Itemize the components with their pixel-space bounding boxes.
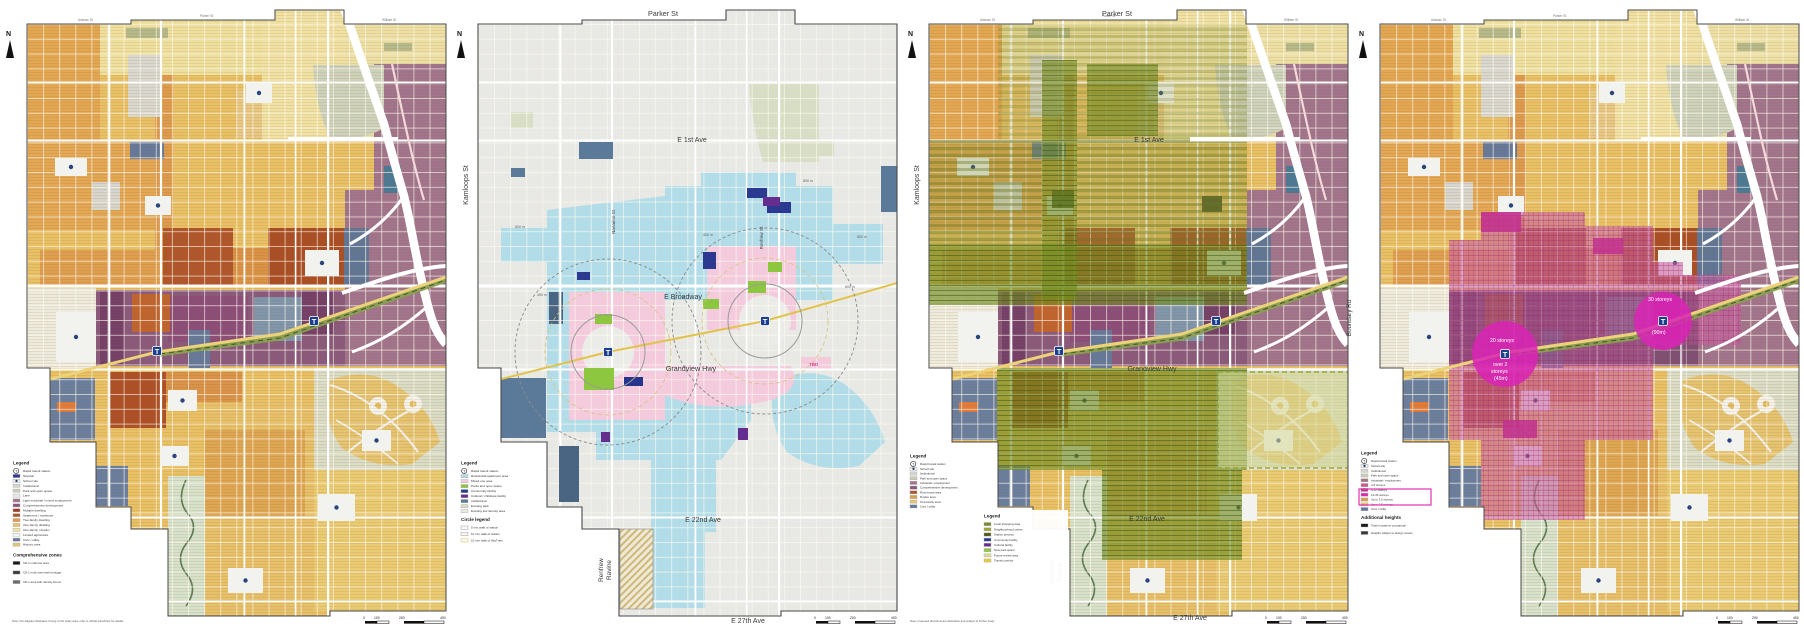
svg-text:E 22nd Ave: E 22nd Ave xyxy=(1129,516,1165,523)
svg-text:E 27th Ave: E 27th Ave xyxy=(1173,615,1207,622)
svg-text:Parks and open space: Parks and open space xyxy=(471,484,502,488)
svg-text:0: 0 xyxy=(1716,616,1718,620)
svg-text:5 min walk of station: 5 min walk of station xyxy=(471,526,499,530)
svg-text:New park space: New park space xyxy=(994,548,1015,552)
svg-text:400 m: 400 m xyxy=(537,293,547,297)
svg-text:E 1st Ave: E 1st Ave xyxy=(1134,137,1164,144)
svg-text:Local shopping area: Local shopping area xyxy=(994,522,1020,526)
svg-text:Ravine: Ravine xyxy=(606,560,613,580)
svg-text:800 m: 800 m xyxy=(515,225,525,229)
svg-text:One-family dwelling: One-family dwelling xyxy=(23,523,50,527)
svg-text:12-30 storeys: 12-30 storeys xyxy=(1371,493,1389,497)
svg-text:Parker St: Parker St xyxy=(200,14,213,18)
svg-text:Community facility: Community facility xyxy=(471,489,497,493)
svg-text:Comprehensive development: Comprehensive development xyxy=(920,486,958,490)
svg-text:Grandview Hwy: Grandview Hwy xyxy=(1127,366,1177,373)
svg-text:Station precinct: Station precinct xyxy=(994,533,1014,537)
svg-text:Rapid transit station: Rapid transit station xyxy=(1371,459,1397,463)
svg-text:Rapid transit station: Rapid transit station xyxy=(471,469,499,473)
svg-text:One-family area: One-family area xyxy=(920,500,941,504)
svg-text:Legend: Legend xyxy=(984,514,1001,519)
svg-text:800 m: 800 m xyxy=(857,235,867,239)
svg-text:100: 100 xyxy=(1276,616,1282,620)
svg-text:200: 200 xyxy=(1301,616,1307,620)
svg-text:Heights subject to design revi: Heights subject to design review xyxy=(1371,531,1413,535)
svg-text:Kamloops St: Kamloops St xyxy=(914,165,921,205)
svg-text:Park and open space: Park and open space xyxy=(23,489,53,493)
svg-text:Duplex area: Duplex area xyxy=(920,495,936,499)
svg-text:Up to 3.5 storeys: Up to 3.5 storeys xyxy=(1371,498,1393,502)
svg-text:E 27th Ave: E 27th Ave xyxy=(731,618,765,625)
svg-text:Institutional: Institutional xyxy=(471,499,487,503)
svg-text:Parker St: Parker St xyxy=(1553,14,1566,18)
svg-text:Institutional: Institutional xyxy=(1371,469,1386,473)
svg-text:10 min walk of SkyTrain: 10 min walk of SkyTrain xyxy=(471,539,503,543)
svg-text:Adanac St: Adanac St xyxy=(980,18,995,22)
svg-text:10 min walk of station: 10 min walk of station xyxy=(471,532,500,536)
svg-text:T: T xyxy=(606,348,611,357)
svg-text:Institutional: Institutional xyxy=(920,472,935,476)
svg-text:Legend: Legend xyxy=(461,461,478,466)
svg-text:William St: William St xyxy=(1735,18,1749,22)
svg-text:Comprehensive development: Comprehensive development xyxy=(23,504,63,508)
svg-text:Circle legend: Circle legend xyxy=(461,517,490,522)
svg-text:School site: School site xyxy=(23,479,38,483)
svg-text:Rapid transit station: Rapid transit station xyxy=(920,462,946,466)
svg-text:Transit corridor: Transit corridor xyxy=(994,559,1013,563)
svg-text:Grandview Hwy: Grandview Hwy xyxy=(666,364,717,373)
svg-text:400: 400 xyxy=(1793,616,1799,620)
svg-text:0: 0 xyxy=(814,616,816,620)
svg-text:Civic / utility: Civic / utility xyxy=(920,505,936,509)
svg-text:School site: School site xyxy=(1371,464,1386,468)
svg-text:Mixed-use area: Mixed-use area xyxy=(471,479,493,483)
svg-text:800 m: 800 m xyxy=(845,285,855,289)
svg-text:Kamloops St: Kamloops St xyxy=(463,165,470,205)
svg-text:800 m: 800 m xyxy=(803,179,813,183)
svg-text:100: 100 xyxy=(374,616,380,620)
svg-text:N: N xyxy=(908,31,913,38)
svg-text:Civic / utility: Civic / utility xyxy=(23,538,40,542)
svg-text:400 m: 400 m xyxy=(703,233,713,237)
svg-text:(90m): (90m) xyxy=(1652,330,1666,336)
svg-text:T: T xyxy=(763,317,768,326)
svg-text:N: N xyxy=(1359,31,1364,38)
svg-text:Legend: Legend xyxy=(910,454,927,459)
svg-text:200: 200 xyxy=(850,616,856,620)
svg-text:N: N xyxy=(6,31,11,38)
svg-text:400: 400 xyxy=(1342,616,1348,620)
svg-text:0: 0 xyxy=(1265,616,1267,620)
svg-text:20 storeys: 20 storeys xyxy=(1490,338,1514,344)
svg-text:Adanac St: Adanac St xyxy=(1431,18,1446,22)
svg-text:Institutional: Institutional xyxy=(23,484,39,488)
svg-text:CD-1 area with density bonus: CD-1 area with density bonus xyxy=(23,580,61,584)
svg-text:T: T xyxy=(312,317,317,326)
svg-text:Future review area: Future review area xyxy=(994,553,1018,557)
svg-text:Neighbourhood centre: Neighbourhood centre xyxy=(994,527,1023,531)
svg-text:Park and open space: Park and open space xyxy=(920,476,948,480)
svg-text:30 storeys: 30 storeys xyxy=(1648,297,1672,303)
svg-text:400: 400 xyxy=(440,616,446,620)
svg-text:Up to 2.5 storeys: Up to 2.5 storeys xyxy=(1371,502,1393,506)
svg-text:Community facility: Community facility xyxy=(994,538,1018,542)
svg-text:Note: proposed directions are: Note: proposed directions are illustrati… xyxy=(910,619,995,623)
svg-text:T: T xyxy=(1057,347,1062,356)
svg-text:E Broadway: E Broadway xyxy=(664,294,702,301)
svg-text:Note: this diagram illustrates: Note: this diagram illustrates zoning of… xyxy=(12,619,124,623)
svg-text:Cultural facility: Cultural facility xyxy=(994,543,1013,547)
svg-text:Existing park: Existing park xyxy=(471,504,489,508)
svg-text:TBD: TBD xyxy=(809,362,819,367)
svg-text:N: N xyxy=(457,31,462,38)
svg-text:Comprehensive zones: Comprehensive zones xyxy=(13,552,62,557)
svg-text:One-family / duplex: One-family / duplex xyxy=(23,528,50,532)
svg-text:over 2: over 2 xyxy=(1493,362,1508,368)
svg-text:Park and open space: Park and open space xyxy=(1371,474,1399,478)
svg-text:Civic / utility: Civic / utility xyxy=(1371,507,1387,511)
svg-text:200: 200 xyxy=(1752,616,1758,620)
svg-text:100: 100 xyxy=(1727,616,1733,620)
svg-text:Parker St: Parker St xyxy=(1102,9,1132,18)
svg-text:Additional heights: Additional heights xyxy=(1361,515,1402,520)
svg-text:Adanac St: Adanac St xyxy=(78,18,93,22)
svg-text:400: 400 xyxy=(891,616,897,620)
svg-text:Light industrial / mixed emplo: Light industrial / mixed employment xyxy=(23,499,72,503)
svg-text:Legend: Legend xyxy=(13,461,30,466)
svg-text:Parker St: Parker St xyxy=(648,9,678,18)
svg-text:William St: William St xyxy=(382,18,396,22)
svg-text:Industrial / employment: Industrial / employment xyxy=(1371,478,1401,482)
svg-text:Skytrain: Skytrain xyxy=(23,474,34,478)
svg-text:E 22nd Ave: E 22nd Ave xyxy=(685,517,721,524)
svg-text:T: T xyxy=(1214,317,1219,326)
svg-text:CD-1 multi zone with frontage: CD-1 multi zone with frontage xyxy=(23,571,61,575)
svg-text:T: T xyxy=(1661,317,1666,326)
svg-text:Existing low density area: Existing low density area xyxy=(471,509,505,513)
svg-text:William St: William St xyxy=(1284,18,1298,22)
svg-text:4-6 storeys: 4-6 storeys xyxy=(1371,483,1386,487)
svg-text:Row house area: Row house area xyxy=(920,490,941,494)
svg-text:Legend: Legend xyxy=(1361,451,1378,456)
svg-text:Nanaimo St: Nanaimo St xyxy=(611,209,616,234)
svg-text:T: T xyxy=(155,347,160,356)
svg-text:Limited agriculture: Limited agriculture xyxy=(23,533,49,537)
svg-text:Industrial / employment: Industrial / employment xyxy=(920,481,950,485)
svg-text:Lane: Lane xyxy=(23,494,30,498)
svg-text:T: T xyxy=(1503,350,1508,359)
svg-text:Multiple dwelling: Multiple dwelling xyxy=(23,508,46,512)
svg-text:School site: School site xyxy=(920,467,935,471)
svg-text:Two-family dwelling: Two-family dwelling xyxy=(23,518,50,522)
svg-text:200: 200 xyxy=(399,616,405,620)
svg-text:Rapid transit station: Rapid transit station xyxy=(23,469,51,473)
svg-text:(45m): (45m) xyxy=(1494,376,1508,382)
svg-text:E 1st Ave: E 1st Ave xyxy=(677,137,707,144)
svg-text:Tower locations conceptual: Tower locations conceptual xyxy=(1371,524,1406,528)
svg-text:CD-1 multi-use area: CD-1 multi-use area xyxy=(23,561,49,565)
svg-text:Residential apartment area: Residential apartment area xyxy=(471,474,508,478)
svg-text:Cultural / childcare facility: Cultural / childcare facility xyxy=(471,494,507,498)
svg-text:Historic area: Historic area xyxy=(23,543,41,547)
svg-text:Boundary Rd: Boundary Rd xyxy=(1346,299,1353,336)
svg-text:Apartment / rowhouse: Apartment / rowhouse xyxy=(23,513,54,517)
svg-text:storeys: storeys xyxy=(1491,369,1508,375)
svg-text:Renfrew: Renfrew xyxy=(598,558,605,582)
svg-text:0: 0 xyxy=(363,616,365,620)
svg-text:100: 100 xyxy=(825,616,831,620)
svg-text:Renfrew St: Renfrew St xyxy=(759,226,764,249)
